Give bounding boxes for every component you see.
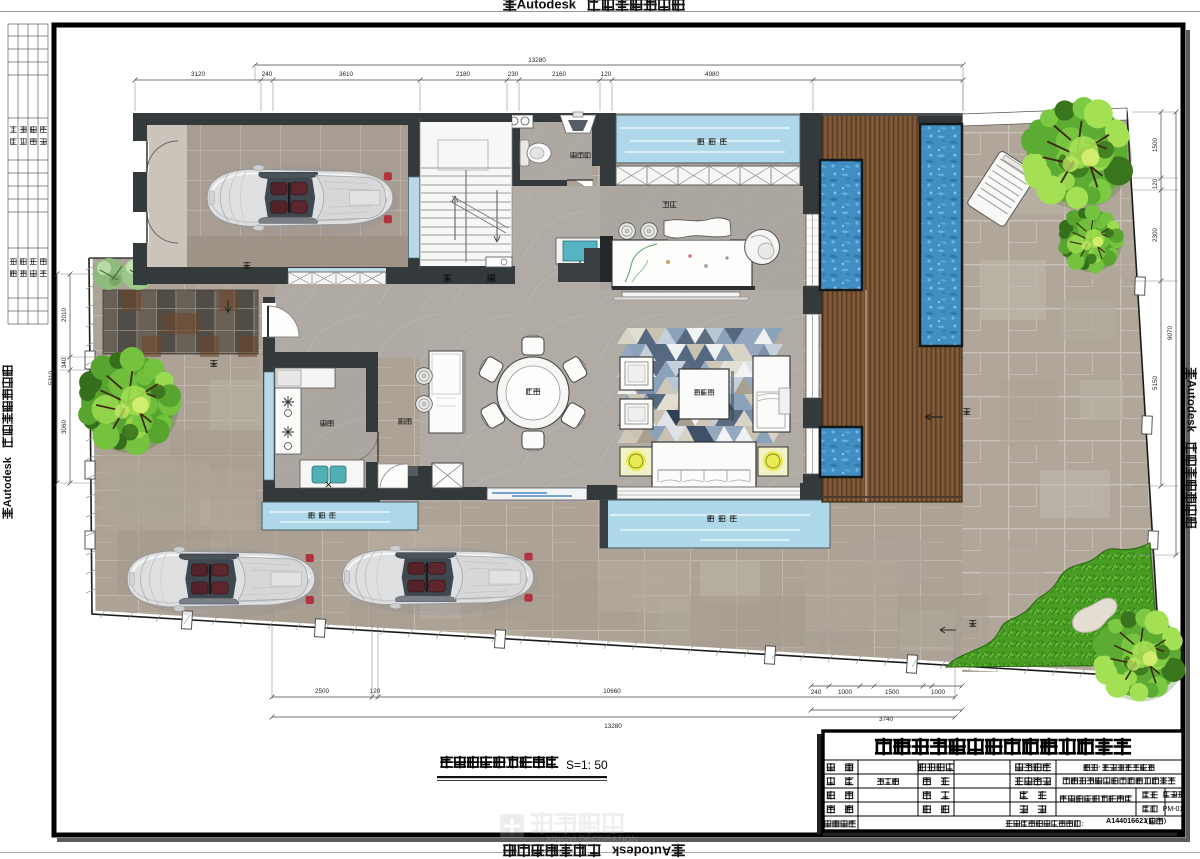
svg-text:4980: 4980 (705, 71, 720, 78)
svg-text:2010: 2010 (61, 308, 68, 323)
svg-text:1500: 1500 (885, 689, 900, 696)
svg-text:2180: 2180 (456, 71, 471, 78)
svg-text:13280: 13280 (604, 723, 622, 730)
svg-text:PM-01: PM-01 (1163, 806, 1184, 813)
svg-text:Autodesk: Autodesk (1185, 380, 1197, 433)
svg-text:1000: 1000 (838, 689, 853, 696)
svg-text:120: 120 (370, 688, 381, 695)
svg-text:3740: 3740 (879, 716, 894, 723)
svg-text:S=1: 50: S=1: 50 (566, 758, 608, 772)
svg-text:1500: 1500 (1152, 138, 1159, 153)
svg-text:5150: 5150 (1152, 376, 1159, 391)
svg-text:10660: 10660 (603, 688, 621, 695)
svg-text:2500: 2500 (315, 688, 330, 695)
svg-text:·: · (1098, 765, 1100, 772)
svg-text:5310: 5310 (48, 371, 55, 386)
svg-text:Autodesk: Autodesk (611, 843, 671, 858)
svg-text:9070: 9070 (1167, 326, 1174, 341)
svg-text:240: 240 (262, 71, 273, 78)
svg-text:3120: 3120 (191, 71, 206, 78)
svg-text:230: 230 (508, 71, 519, 78)
svg-text:240: 240 (811, 689, 822, 696)
svg-text:Autodesk: Autodesk (2, 456, 14, 507)
svg-text:1000: 1000 (931, 689, 946, 696)
svg-text:13280: 13280 (528, 57, 546, 64)
svg-text:3060: 3060 (61, 420, 68, 435)
svg-text:XINGYI DECORATION: XINGYI DECORATION (546, 834, 638, 844)
svg-text:3610: 3610 (339, 71, 354, 78)
svg-text:2300: 2300 (1152, 228, 1159, 243)
svg-text:340: 340 (61, 357, 68, 368)
svg-text:120: 120 (1152, 178, 1159, 189)
svg-text:Autodesk: Autodesk (517, 0, 577, 12)
svg-text:120: 120 (601, 71, 612, 78)
svg-text:2160: 2160 (552, 71, 567, 78)
svg-text:A144016621: A144016621 (1106, 816, 1147, 825)
